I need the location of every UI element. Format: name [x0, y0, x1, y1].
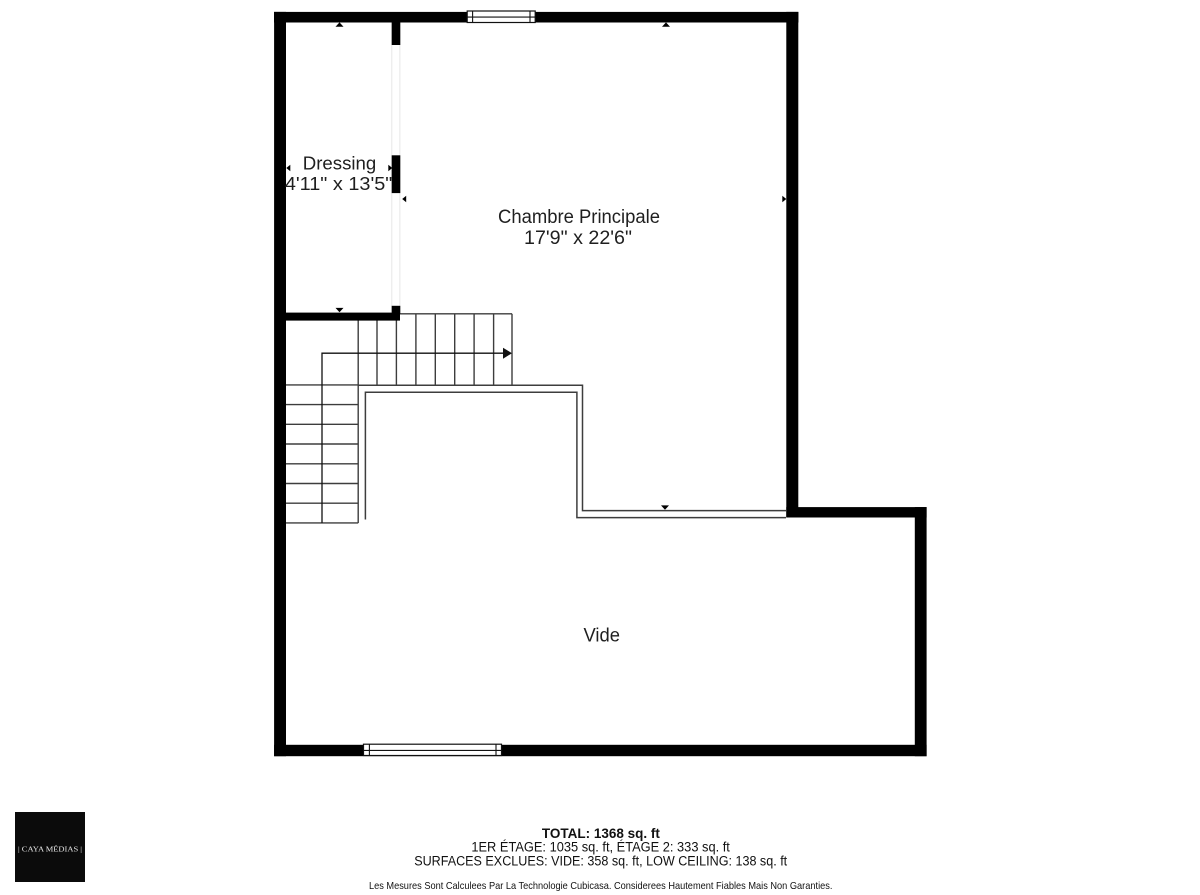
svg-text:Vide: Vide	[583, 626, 620, 647]
svg-text:Chambre Principale: Chambre Principale	[498, 207, 660, 228]
svg-text:Les Mesures Sont Calculees Par: Les Mesures Sont Calculees Par La Techno…	[369, 880, 833, 892]
svg-text:17'9" x 22'6": 17'9" x 22'6"	[524, 228, 632, 249]
svg-text:| CAYA MÉDIAS |: | CAYA MÉDIAS |	[18, 844, 82, 854]
svg-text:Dressing: Dressing	[303, 152, 377, 173]
svg-text:4'11" x 13'5": 4'11" x 13'5"	[285, 173, 393, 194]
svg-text:SURFACES EXCLUES: VIDE: 358 sq: SURFACES EXCLUES: VIDE: 358 sq. ft, LOW …	[414, 853, 787, 868]
